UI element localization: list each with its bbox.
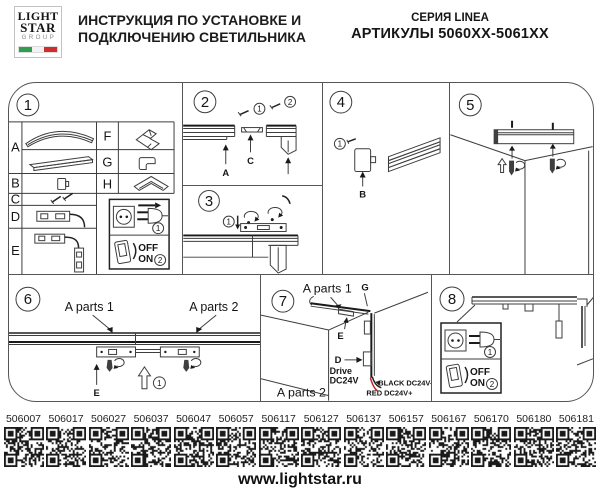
step-number-2: 2: [201, 95, 209, 111]
qr-item: 506157: [386, 413, 427, 467]
italian-flag-stripe: [18, 46, 58, 53]
legend-on: ON: [470, 378, 485, 389]
label-a-parts-1: A parts 1: [303, 281, 352, 295]
track-a-drawing: [183, 126, 234, 140]
qr-code: [471, 427, 511, 467]
part-b-drawing: [58, 179, 66, 190]
power-legend: 1 OFF ON 2: [441, 323, 501, 393]
label-dc24v: DC24V: [330, 376, 359, 386]
svg-text:1: 1: [227, 218, 232, 227]
label-e: E: [93, 388, 99, 399]
screw-step-1: 1: [223, 216, 240, 230]
part-g-drawing: [139, 158, 155, 170]
qr-article-number: 506117: [258, 413, 299, 426]
curved-track-drawing: [26, 131, 94, 146]
label-red-wire: RED DC24V+: [366, 389, 413, 398]
legend-off: OFF: [470, 367, 490, 378]
flag-white: [32, 47, 45, 52]
title-line-2: ПОДКЛЮЧЕНИЮ СВЕТИЛЬНИКА: [78, 29, 306, 46]
qr-row: 5060075060175060275060375060475060575061…: [3, 413, 597, 467]
qr-article-number: 506137: [343, 413, 384, 426]
qr-article-number: 506007: [3, 413, 44, 426]
panel-2-join-tracks: 2 1 2: [183, 83, 323, 186]
qr-item: 506137: [343, 413, 384, 467]
part-d-drawing: [37, 211, 85, 227]
panel-1-parts-list: 1 A B C D E F G H: [9, 83, 183, 275]
screwdrivers: [509, 144, 565, 176]
track-3d-drawing: [388, 138, 440, 172]
panel-6-join-straight: 6 A parts 1 A parts 2: [9, 275, 261, 401]
power-legend: 1 OFF ON 2: [109, 199, 169, 269]
panel-5-diagram: 5: [450, 83, 593, 274]
label-c: C: [247, 155, 254, 166]
panel-6-diagram: 6 A parts 1 A parts 2: [9, 275, 260, 401]
part-f-drawing: [136, 130, 159, 150]
part-letter-b: B: [11, 175, 20, 190]
legend-on: ON: [138, 254, 153, 265]
svg-text:1: 1: [338, 140, 343, 149]
series-name: СЕРИЯ LINEA: [350, 11, 550, 25]
qr-code: [259, 427, 299, 467]
title-line-1: ИНСТРУКЦИЯ ПО УСТАНОВКЕ И: [78, 12, 306, 29]
corner-track-drawing: [266, 126, 296, 155]
qr-item: 506127: [301, 413, 342, 467]
qr-item: 506047: [173, 413, 214, 467]
step-number-7: 7: [279, 294, 287, 310]
qr-article-number: 506157: [386, 413, 427, 426]
panel-1-diagram: 1 A B C D E F G H: [9, 83, 182, 274]
qr-code: [386, 427, 426, 467]
panel-4-bracket: 4 1 B: [323, 83, 450, 275]
label-a-parts-2: A parts 2: [189, 300, 238, 314]
qr-article-number: 506027: [88, 413, 129, 426]
qr-item: 506057: [216, 413, 257, 467]
qr-article-number: 506037: [131, 413, 172, 426]
insert-arrow: [498, 159, 506, 173]
switch-icon: [114, 240, 131, 264]
qr-code: [174, 427, 214, 467]
track-corner-drawing: [183, 235, 298, 273]
articles-range: АРТИКУЛЫ 5060XX-5061XX: [350, 25, 550, 43]
pendant-lamp: [556, 321, 562, 338]
panel-8-power-on: 8: [432, 275, 593, 401]
label-drive: Drive: [330, 366, 352, 376]
insert-arrow: [138, 367, 150, 389]
part-e-drawing: [35, 234, 84, 272]
qr-item: 506007: [3, 413, 44, 467]
svg-text:2: 2: [288, 98, 292, 107]
qr-code: [556, 427, 596, 467]
connector-plates: [97, 347, 200, 357]
connector-c-drawing: [242, 128, 263, 132]
qr-code: [429, 427, 469, 467]
qr-article-number: 506127: [301, 413, 342, 426]
legend-step-2: 2: [158, 256, 163, 265]
switch-icon: [446, 364, 463, 388]
part-letter-a: A: [11, 140, 20, 155]
screw-step-1: 1: [334, 138, 355, 149]
plug-icon: [137, 202, 168, 223]
qr-code: [4, 427, 44, 467]
rotation-arrows: [244, 196, 290, 224]
qr-code: [131, 427, 171, 467]
label-b: B: [359, 188, 366, 199]
part-letter-h: H: [103, 176, 112, 191]
qr-item: 506170: [471, 413, 512, 467]
step-number-1: 1: [24, 98, 32, 114]
instruction-grid: 1 A B C D E F G H: [8, 82, 594, 402]
qr-article-number: 506170: [471, 413, 512, 426]
bracket-b-drawing: [355, 149, 376, 172]
panel-7-diagram: 7 A parts 1 G E D Drive DC24V A parts 2: [261, 275, 431, 401]
panel-7-corner-wiring: 7 A parts 1 G E D Drive DC24V A parts 2: [261, 275, 432, 401]
qr-item: 506167: [428, 413, 469, 467]
screwdrivers: [107, 358, 201, 371]
qr-code: [344, 427, 384, 467]
legend-step-1: 1: [488, 348, 493, 357]
series-block: СЕРИЯ LINEA АРТИКУЛЫ 5060XX-5061XX: [350, 11, 550, 43]
qr-article-number: 506180: [513, 413, 554, 426]
document-title: ИНСТРУКЦИЯ ПО УСТАНОВКЕ И ПОДКЛЮЧЕНИЮ СВ…: [78, 12, 306, 46]
logo-text-star: STAR: [15, 22, 61, 34]
plug-icon: [469, 332, 500, 347]
mounted-track-drawing: [494, 130, 574, 144]
part-letter-d: D: [11, 209, 20, 224]
qr-code: [514, 427, 554, 467]
lightstar-logo: LIGHT STAR GROUP: [14, 6, 62, 58]
qr-article-number: 506181: [556, 413, 597, 426]
qr-item: 506181: [556, 413, 597, 467]
qr-item: 506027: [88, 413, 129, 467]
part-letter-c: C: [11, 191, 20, 206]
legend-step-1: 1: [156, 224, 161, 233]
step-number-3: 3: [205, 194, 213, 210]
logo-text-group: GROUP: [15, 34, 61, 43]
joined-track-drawing: [9, 333, 260, 345]
joint-plate-drawing: [241, 224, 286, 232]
label-black-wire: BLACK DC24V-: [378, 379, 431, 388]
svg-text:1: 1: [257, 105, 262, 114]
qr-item: 506117: [258, 413, 299, 467]
panel-4-diagram: 4 1 B: [323, 83, 449, 274]
step-number-6: 6: [24, 291, 32, 308]
ceiling-corner-lines: [450, 135, 592, 274]
panel-5-ceiling-mount: 5: [450, 83, 593, 275]
part-letter-g: G: [102, 155, 112, 170]
label-a: A: [222, 167, 229, 178]
label-g: G: [361, 282, 368, 293]
straight-track-drawing: [30, 157, 93, 168]
step-number-8: 8: [448, 291, 456, 308]
qr-article-number: 506017: [46, 413, 87, 426]
panel-3-diagram: 3 1: [183, 186, 322, 274]
qr-article-number: 506167: [428, 413, 469, 426]
panel-2-diagram: 2 1 2: [183, 83, 322, 185]
qr-article-number: 506057: [216, 413, 257, 426]
label-d: D: [335, 355, 342, 366]
panel-8-diagram: 8: [432, 275, 593, 401]
screw-step-2: 2: [270, 96, 296, 109]
qr-item: 506180: [513, 413, 554, 467]
label-a-parts-2: A parts 2: [277, 386, 326, 400]
part-letter-f: F: [103, 129, 111, 144]
step-number-4: 4: [337, 95, 345, 111]
screw-step-1: 1: [238, 103, 265, 116]
qr-code: [89, 427, 129, 467]
label-a-parts-1: A parts 1: [65, 300, 114, 314]
flag-red: [44, 47, 57, 52]
qr-code: [216, 427, 256, 467]
screws-drawing: [51, 193, 73, 203]
qr-code: [46, 427, 86, 467]
step-number-5: 5: [466, 97, 474, 114]
panel-3-fix-screws: 3 1: [183, 186, 323, 275]
part-letter-e: E: [11, 243, 20, 258]
room-lines: [457, 287, 593, 365]
legend-step-2: 2: [490, 380, 495, 389]
footer-url: www.lightstar.ru: [0, 471, 600, 489]
label-e: E: [337, 331, 343, 342]
qr-item: 506017: [46, 413, 87, 467]
qr-article-number: 506047: [173, 413, 214, 426]
flag-green: [19, 47, 32, 52]
qr-code: [301, 427, 341, 467]
part-h-drawing: [134, 177, 168, 191]
legend-off: OFF: [138, 243, 158, 254]
qr-item: 506037: [131, 413, 172, 467]
step-1-badge: 1: [157, 379, 162, 388]
